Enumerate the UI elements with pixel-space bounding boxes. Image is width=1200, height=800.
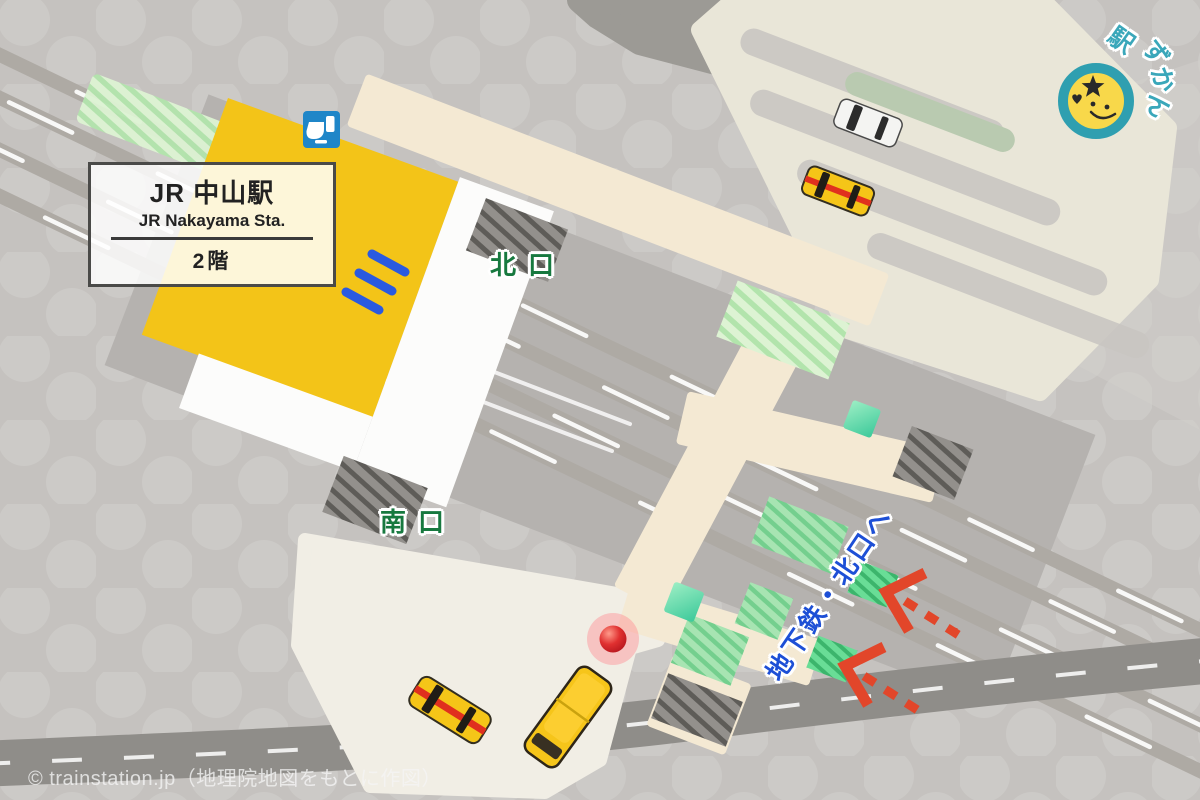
brand-badge-face [1063, 68, 1129, 134]
station-title: JR 中山駅 [97, 173, 327, 210]
north-exit-label: 北口 [490, 245, 566, 282]
station-map: JR 中山駅 JR Nakayama Sta. 2階 北口 南口 地下鉄・北口へ… [0, 0, 1200, 800]
station-box-divider [111, 237, 313, 240]
station-name-box: JR 中山駅 JR Nakayama Sta. 2階 [88, 162, 336, 287]
station-subtitle: JR Nakayama Sta. [97, 211, 327, 231]
south-exit-label: 南口 [380, 502, 456, 539]
map-graphics [0, 0, 1200, 800]
badge-char-4: ん [1142, 93, 1178, 118]
station-floor: 2階 [97, 245, 327, 275]
red-ball-marker [587, 613, 639, 665]
copyright-note: © trainstation.jp（地理院地図をもとに作図） [28, 762, 442, 791]
toilet-icon [303, 111, 340, 148]
